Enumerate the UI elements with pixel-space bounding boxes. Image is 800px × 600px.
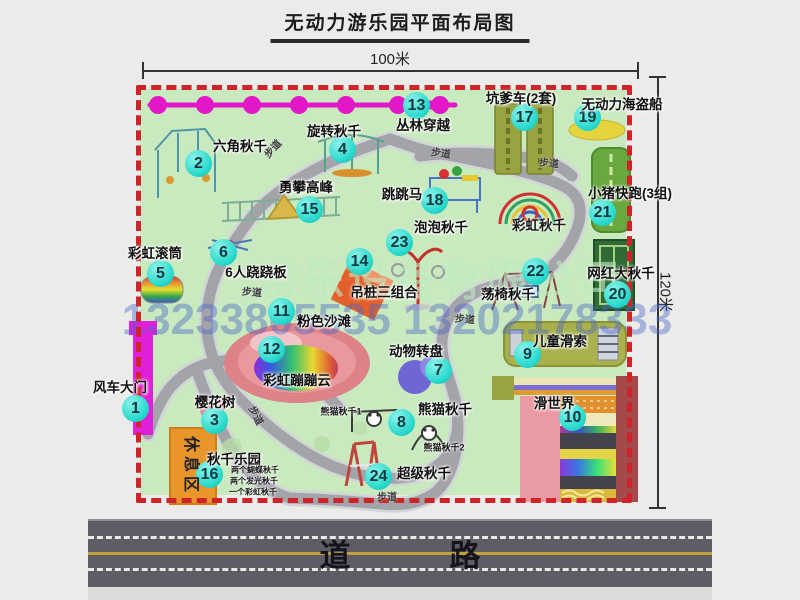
attraction-marker-11: 11 [268, 298, 295, 325]
extra-label: 熊猫秋千2 [423, 441, 464, 454]
attraction-marker-15: 15 [296, 196, 323, 223]
attraction-label-19: 无动力海盗船 [582, 93, 663, 113]
road: 道 路 [88, 519, 712, 587]
footpath-label: 步道 [454, 310, 475, 327]
attraction-label-23: 泡泡秋千 [414, 216, 468, 236]
attraction-label-12: 彩虹蹦蹦云 [263, 369, 331, 389]
attraction-marker-3: 3 [201, 407, 228, 434]
attraction-marker-7: 7 [425, 357, 452, 384]
attraction-label-20: 网红大秋千 [587, 262, 655, 282]
attraction-label-2: 六角秋千 [213, 135, 267, 155]
attraction-marker-21: 21 [589, 199, 616, 226]
attraction-label-13: 丛林穿越 [396, 114, 450, 134]
attraction-label-7: 动物转盘 [389, 340, 443, 360]
extra-label: 彩虹秋千 [512, 214, 566, 234]
extra-label: 熊猫秋千1 [320, 405, 361, 418]
attraction-label-6: 6人跷跷板 [225, 261, 287, 281]
attraction-marker-4: 4 [329, 136, 356, 163]
footpath-label: 步道 [430, 143, 452, 161]
extra-label: 两个发光秋千 [230, 476, 278, 487]
attraction-marker-24: 24 [365, 463, 392, 490]
attraction-marker-17: 17 [511, 104, 538, 131]
attraction-label-5: 彩虹滚筒 [128, 242, 182, 262]
attraction-label-18: 跳跳马 [382, 183, 423, 203]
footpath-label: 步道 [538, 154, 559, 171]
attraction-marker-1: 1 [122, 395, 149, 422]
attraction-label-15: 勇攀高峰 [279, 176, 333, 196]
attraction-marker-2: 2 [185, 150, 212, 177]
attraction-label-4: 旋转秋千 [307, 120, 361, 140]
attraction-label-11: 粉色沙滩 [297, 310, 351, 330]
footpath-label: 步道 [377, 489, 397, 504]
attraction-marker-23: 23 [386, 229, 413, 256]
attraction-label-3: 樱花树 [195, 391, 236, 411]
footpath-label: 步道 [241, 283, 262, 300]
attraction-marker-8: 8 [388, 409, 415, 436]
attraction-label-24: 超级秋千 [397, 462, 451, 482]
extra-label: 一个彩虹秋千 [229, 487, 277, 498]
extra-label: 两个蝴蝶秋千 [231, 465, 279, 476]
rest-area-label: 休息区 [181, 436, 205, 496]
attraction-label-8: 熊猫秋千 [418, 398, 472, 418]
attraction-label-17: 坑爹车(2套) [486, 87, 557, 107]
playground-plan-image: 无动力游乐园平面布局图 100米 120米 [0, 0, 800, 600]
attraction-label-14: 吊桩三组合 [350, 281, 418, 301]
attraction-label-10: 滑世界 [534, 392, 575, 412]
attraction-marker-20: 20 [604, 281, 631, 308]
attraction-label-9: 儿童滑索 [533, 330, 587, 350]
attraction-marker-14: 14 [346, 248, 373, 275]
road-shoulder [88, 587, 712, 600]
attraction-label-1: 风车大门 [93, 376, 147, 396]
attraction-label-21: 小猪快跑(3组) [588, 182, 672, 202]
footpath-label: 步道 [246, 403, 269, 428]
attraction-marker-5: 5 [147, 260, 174, 287]
attraction-marker-18: 18 [421, 187, 448, 214]
road-label: 道 路 [286, 531, 515, 576]
attraction-label-22: 荡椅秋千 [481, 283, 535, 303]
attraction-marker-12: 12 [258, 336, 285, 363]
attraction-marker-22: 22 [522, 258, 549, 285]
attraction-markers-layer: 1风车大门2六角秋千3樱花树4旋转秋千5彩虹滚筒66人跷跷板7动物转盘8熊猫秋千… [0, 0, 800, 600]
